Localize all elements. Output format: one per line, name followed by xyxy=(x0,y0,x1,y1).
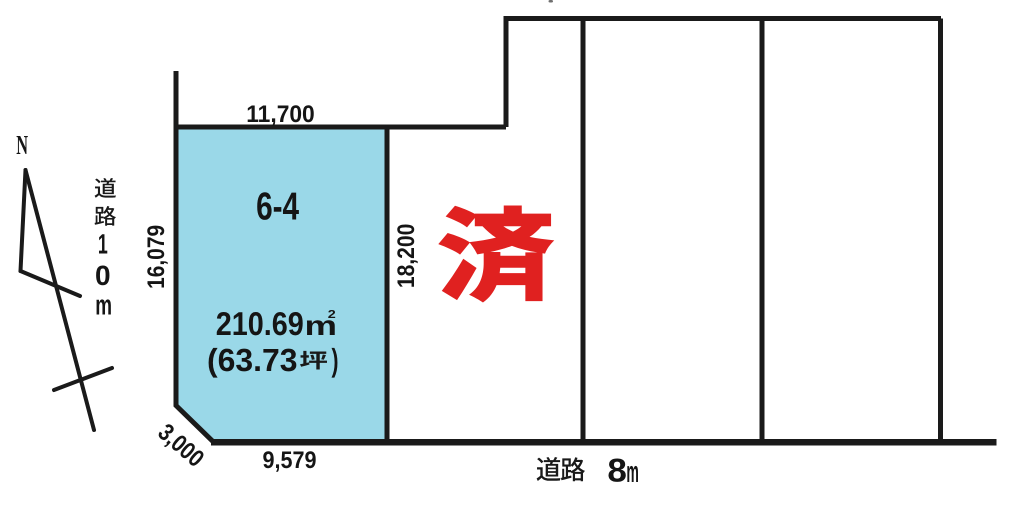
svg-text:1: 1 xyxy=(98,229,108,260)
svg-text:6-4: 6-4 xyxy=(256,186,299,229)
svg-text:9,579: 9,579 xyxy=(263,447,317,474)
svg-text:m: m xyxy=(626,456,639,489)
svg-text:16,079: 16,079 xyxy=(143,225,170,289)
svg-text:2: 2 xyxy=(328,309,336,321)
svg-text:): ) xyxy=(332,342,339,378)
svg-text:(63.73: (63.73 xyxy=(207,342,298,378)
svg-text:210.69: 210.69 xyxy=(216,305,304,342)
svg-text:0: 0 xyxy=(95,260,111,291)
svg-text:11,700: 11,700 xyxy=(246,101,315,128)
svg-text:N: N xyxy=(16,129,28,160)
svg-text:8: 8 xyxy=(607,452,627,489)
svg-text:m: m xyxy=(95,289,112,320)
svg-text:18,200: 18,200 xyxy=(393,224,420,289)
